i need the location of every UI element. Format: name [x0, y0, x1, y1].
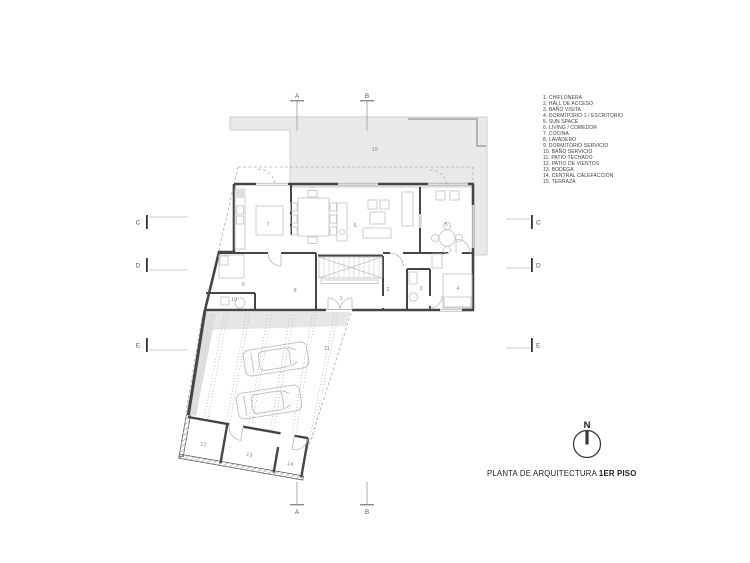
sheet-title-bold: 1ER PISO — [599, 469, 637, 478]
sheet-title-prefix: PLANTA DE ARQUITECTURA — [487, 469, 599, 478]
north-arrow: N — [574, 420, 601, 458]
north-label: N — [584, 420, 591, 431]
room-label-12: 12 — [200, 442, 207, 449]
grid-marker-left-d: D — [136, 258, 188, 272]
room-label-13: 13 — [246, 452, 253, 459]
room-label-1: 1 — [339, 296, 342, 302]
room-label-11: 11 — [324, 346, 330, 352]
floor-plan-svg: 12 13 14 — [0, 0, 750, 563]
svg-text:C: C — [136, 220, 141, 227]
grid-marker-left-e: E — [136, 338, 188, 352]
car — [235, 384, 302, 420]
room-label-3: 3 — [419, 286, 422, 292]
terrace-area — [230, 117, 487, 255]
furniture — [219, 189, 472, 308]
svg-text:D: D — [536, 263, 541, 270]
room-label-4: 4 — [456, 286, 459, 292]
grid-marker-bottom-a: A — [290, 482, 304, 516]
room-label-15: 15 — [372, 147, 378, 153]
room-label-9: 9 — [241, 282, 244, 288]
grid-marker-bottom-b: B — [360, 482, 374, 516]
room-label-5: 5 — [444, 222, 447, 228]
svg-text:B: B — [365, 509, 369, 516]
svg-text:E: E — [136, 343, 141, 350]
svg-text:A: A — [295, 509, 300, 516]
room-label-8: 8 — [293, 288, 296, 294]
room-label-7: 7 — [266, 222, 269, 228]
room-label-2: 2 — [386, 287, 389, 293]
drawing-sheet: 12 13 14 — [0, 0, 750, 563]
room-label-14: 14 — [287, 461, 294, 468]
legend-item: 15. TERRAZA — [543, 179, 623, 185]
room-label-10: 10 — [231, 297, 237, 303]
svg-text:B: B — [365, 93, 369, 100]
room-label-6: 6 — [353, 223, 356, 229]
grid-marker-right-d: D — [506, 258, 541, 272]
svg-text:E: E — [536, 343, 541, 350]
legend: 1. CHIFLONERA 2. HALL DE ACCESO 3. BAÑO … — [543, 95, 623, 185]
grid-marker-right-c: C — [506, 215, 541, 229]
sheet-title: PLANTA DE ARQUITECTURA 1ER PISO — [487, 469, 636, 478]
windows — [256, 183, 474, 311]
car — [242, 341, 309, 377]
storage-block: 12 13 14 — [179, 415, 311, 480]
north-needle — [585, 431, 588, 445]
svg-text:D: D — [136, 263, 141, 270]
svg-text:C: C — [536, 220, 541, 227]
grid-marker-right-e: E — [506, 338, 541, 352]
grid-marker-left-c: C — [136, 215, 188, 229]
svg-text:A: A — [295, 93, 300, 100]
stairs — [319, 257, 382, 284]
